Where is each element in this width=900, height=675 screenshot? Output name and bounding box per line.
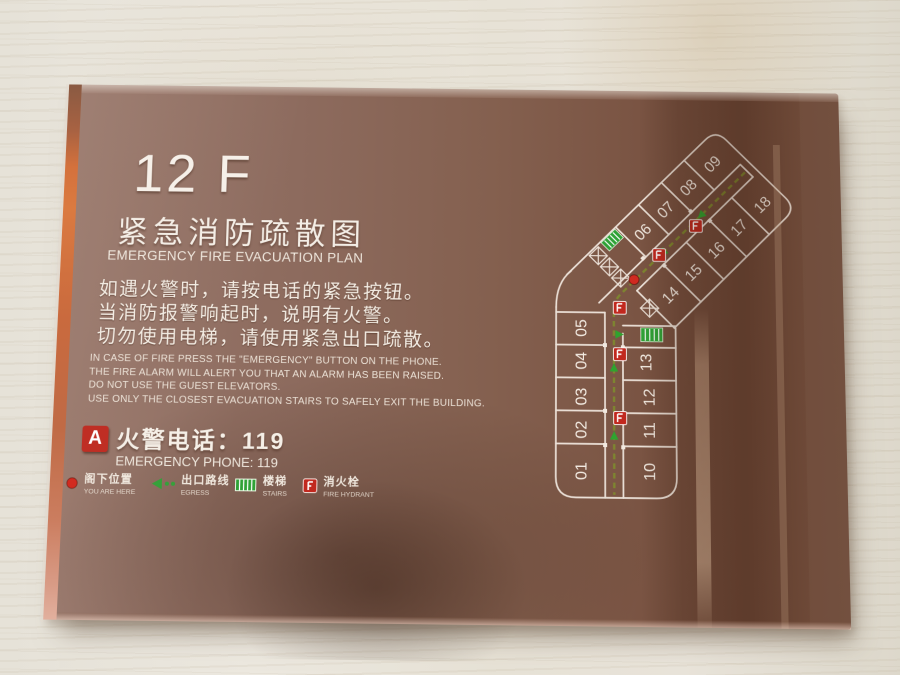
room-label: 06 xyxy=(631,221,655,245)
room-label: 04 xyxy=(573,352,590,370)
emergency-phone-marker-badge: A xyxy=(82,426,109,453)
legend-label-en: EGRESS xyxy=(181,489,230,497)
egress-route-line xyxy=(613,171,749,497)
legend-label-cn: 出口路线 xyxy=(181,475,230,487)
room-label: 10 xyxy=(642,463,660,481)
you-are-here-dot-icon xyxy=(65,475,80,489)
room-label: 15 xyxy=(682,261,706,285)
floorplan-walls xyxy=(556,128,802,500)
legend-item-stairs: 楼梯 STAIRS xyxy=(234,476,287,498)
stairs-icon xyxy=(234,477,258,493)
room-label: 09 xyxy=(701,153,725,176)
room-label: 07 xyxy=(654,198,678,222)
fire-hydrant-icon xyxy=(302,478,319,494)
sign-title-en: EMERGENCY FIRE EVACUATION PLAN xyxy=(107,248,363,266)
instruction-cn-line: 切勿使用电梯，请使用紧急出口疏散。 xyxy=(96,325,444,353)
room-label: 11 xyxy=(642,422,659,439)
legend-label-en: FIRE HYDRANT xyxy=(323,491,374,499)
room-label: 01 xyxy=(573,462,590,480)
room-label: 14 xyxy=(659,283,684,307)
legend-label-en: YOU ARE HERE xyxy=(84,488,136,496)
room-label: 08 xyxy=(677,176,701,199)
room-label: 12 xyxy=(641,388,658,406)
room-label: 05 xyxy=(573,319,590,337)
elevator-bank-icons xyxy=(589,247,630,287)
elevator-icon xyxy=(640,299,658,317)
emergency-phone-en: EMERGENCY PHONE: 119 xyxy=(115,453,278,470)
room-label: 13 xyxy=(638,353,655,371)
stairs-icon xyxy=(641,328,663,342)
floorplan: 01 02 03 04 05 10 11 12 13 06 07 08 09 1… xyxy=(532,111,876,521)
legend-item-fire-hydrant: 消火栓 FIRE HYDRANT xyxy=(302,477,374,499)
room-label: 17 xyxy=(727,216,751,240)
legend-label-cn: 阁下位置 xyxy=(84,474,136,486)
room-label: 02 xyxy=(573,421,590,439)
legend-label-cn: 消火栓 xyxy=(323,477,374,489)
instructions-cn: 如遇火警时，请按电话的紧急按钮。 当消防报警响起时，说明有火警。 切勿使用电梯，… xyxy=(96,278,444,353)
room-label: 18 xyxy=(751,193,775,217)
instructions-en: IN CASE OF FIRE PRESS THE "EMERGENCY" BU… xyxy=(88,352,486,411)
floor-number: 12 F xyxy=(132,142,254,205)
emergency-phone-cn: 火警电话：119 xyxy=(116,420,286,456)
legend-label-en: STAIRS xyxy=(262,490,287,498)
legend-item-egress: 出口路线 EGRESS xyxy=(150,475,230,497)
legend-item-you-are-here: 阁下位置 YOU ARE HERE xyxy=(64,474,136,496)
egress-arrow-icon xyxy=(151,476,177,491)
evacuation-sign-panel: 12 F 紧急消防疏散图 EMERGENCY FIRE EVACUATION P… xyxy=(43,84,851,629)
room-label: 03 xyxy=(573,387,590,405)
sign-title-cn: 紧急消防疏散图 xyxy=(116,207,366,254)
legend-label-cn: 楼梯 xyxy=(263,476,288,488)
room-label: 16 xyxy=(705,239,729,263)
